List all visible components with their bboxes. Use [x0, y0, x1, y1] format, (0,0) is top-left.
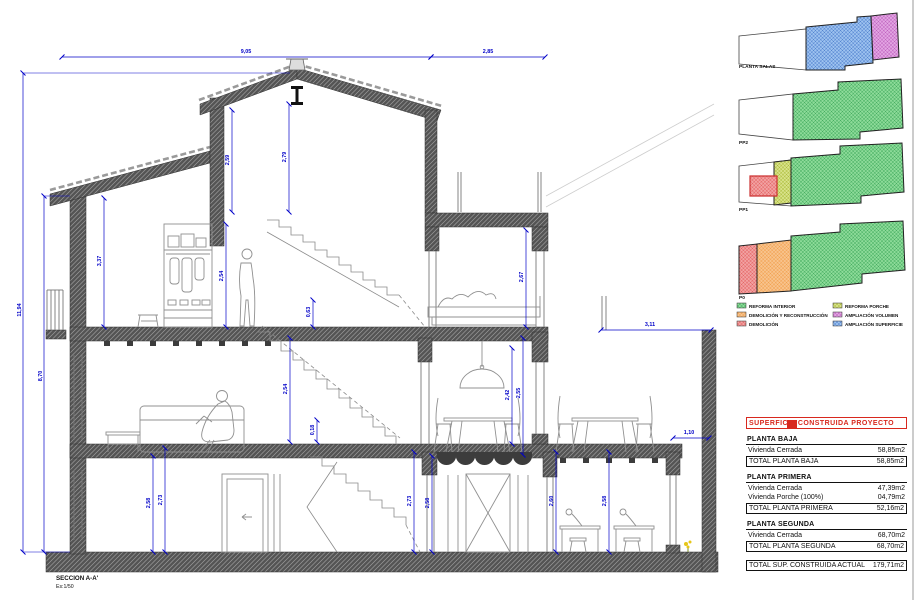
legend-swatch-green: [737, 303, 746, 308]
left-wall: [70, 196, 86, 554]
table-grand-total: TOTAL SUP. CONSTRUIDA ACTUAL179,71m2: [746, 560, 907, 571]
dim-label: 3,11: [645, 322, 655, 328]
plan-region-ampliacion-superficie: [806, 16, 873, 70]
furniture-dressing-room: [138, 224, 255, 327]
plan-region-ampliacion-volumen: [871, 13, 899, 60]
plan-label: P0: [739, 295, 745, 301]
table-row: Vivienda Cerrada68,70m2: [746, 530, 907, 539]
dim-label: 2,60: [549, 496, 555, 507]
title-highlight: [787, 420, 797, 429]
mini-plan-pp2: PP2: [739, 79, 903, 146]
dim-label: 0,18: [310, 425, 316, 436]
legend-label: REFORMA PORCHE: [845, 304, 889, 309]
first-floor-slab: [70, 444, 682, 458]
mini-plan-pp1: PP1: [739, 143, 904, 213]
gable-roof-right-slope: [297, 68, 441, 121]
table-total-row: TOTAL PLANTA BAJA58,85m2: [746, 456, 907, 467]
dim-label: 2,54: [219, 271, 225, 282]
seated-person: [202, 401, 234, 442]
patio-plant: [684, 541, 692, 553]
table-section-header: PLANTA SEGUNDA: [746, 520, 907, 530]
dim-label: 3,37: [97, 256, 103, 267]
table-section-header: PLANTA BAJA: [746, 435, 907, 445]
neighbour-roof-lines: [546, 104, 714, 207]
plan-region-demolicion: [750, 176, 777, 196]
furniture-bedroom: [428, 291, 540, 325]
legend-label: AMPLIACIÓN VOLUMEN: [845, 311, 899, 318]
legend-swatch-purple: [833, 312, 842, 317]
balcony-slab: [46, 330, 66, 339]
dim-label: 9,05: [241, 49, 252, 55]
legend-swatch-blue: [833, 321, 842, 326]
plan-region-reforma-interior: [791, 221, 905, 291]
drawing-title: SECCION A-A' Es:1/50: [56, 575, 99, 590]
boundary-wall: [702, 330, 716, 572]
legend-swatch-olive: [833, 303, 842, 308]
left-roof: [50, 151, 210, 206]
table-section-header: PLANTA PRIMERA: [746, 473, 907, 483]
dining-left-wall-stub: [418, 338, 432, 362]
gf-wall-stub-1: [422, 452, 437, 475]
flat-roof-band: [425, 213, 548, 227]
legend-label: AMPLIACIÓN SUPERFICIE: [845, 320, 903, 327]
dim-label: 2,73: [158, 495, 164, 506]
gf-wall-stub-2: [543, 452, 557, 477]
legend-swatch-orange: [737, 312, 746, 317]
dim-label: 2,67: [519, 272, 525, 283]
gable-roof-left-slope: [200, 68, 297, 115]
building-structure: [46, 59, 718, 572]
drawing-sheet: 9,05 2,85 11,94 8,70 3,37 2,59 2,79 2,54…: [0, 0, 922, 600]
furniture-terrace: [556, 396, 654, 452]
plan-region-reforma-interior: [791, 143, 904, 206]
plan-label: PLANTA SALAS: [739, 64, 776, 70]
bedroom-left-wall-stub: [425, 227, 439, 251]
table-total-row: TOTAL PLANTA PRIMERA52,16m2: [746, 503, 907, 514]
mini-plan-p0: P0: [739, 221, 905, 301]
section-scale: Es:1/50: [56, 584, 74, 590]
door-swing-arrow: [242, 514, 252, 520]
table-row: Vivienda Porche (100%)04,79m2: [746, 492, 907, 501]
dim-label: 2,59: [225, 155, 231, 166]
dining-window-sill: [532, 434, 548, 444]
ridge-beam-symbol: [291, 86, 303, 105]
table-row: Vivienda Cerrada47,39m2: [746, 483, 907, 492]
plan-label: PP1: [739, 207, 748, 213]
dim-label: 8,70: [38, 371, 44, 382]
table-total-row: TOTAL PLANTA SEGUNDA68,70m2: [746, 541, 907, 552]
second-floor-slab: [70, 327, 548, 341]
bedroom-right-wall-stub: [532, 227, 548, 251]
dim-label: 2,85: [483, 49, 494, 55]
dim-label: 0,63: [306, 307, 312, 318]
legend-label: REFORMA INTERIOR: [749, 304, 796, 309]
dim-label: 2,58: [602, 496, 608, 507]
pendant-lamp: [460, 369, 504, 388]
gf-wall-stub-3: [666, 452, 680, 475]
plan-region-reforma-interior: [793, 79, 903, 140]
legend-label: DEMOLICIÓN Y RECONSTRUCCIÓN: [749, 311, 828, 318]
railings-and-openings: [47, 172, 676, 552]
table-row: Vivienda Cerrada58,85m2: [746, 445, 907, 454]
gable-right-parapet: [425, 110, 437, 213]
bed-pillows: [438, 291, 496, 307]
gf-window-sill: [666, 545, 680, 553]
plan-region-demolicion: [739, 244, 757, 294]
chimney: [289, 59, 305, 70]
dim-label: 1,10: [684, 430, 695, 436]
dim-label: 2,73: [407, 496, 413, 507]
ground-hatch: [46, 552, 718, 572]
dim-label: 2,54: [283, 384, 289, 395]
dining-right-wall-stub: [532, 332, 548, 362]
surface-table: SUPERFICIE CONSTRUIDA PROYECTO PLANTA BA…: [746, 417, 907, 571]
legend-swatch-red: [737, 321, 746, 326]
dim-label: 2,42: [505, 390, 511, 401]
dim-label: 2,79: [282, 152, 288, 163]
legend-label: DEMOLICIÓN: [749, 320, 779, 327]
standing-person: [240, 263, 255, 326]
dim-label: 2,58: [425, 498, 431, 509]
furniture-ground-floor: [222, 474, 654, 552]
plan-label: PP2: [739, 140, 748, 146]
dim-label: 2,55: [516, 388, 522, 399]
dimensions: 9,05 2,85 11,94 8,70 3,37 2,59 2,79 2,54…: [17, 49, 711, 552]
dim-label: 11,94: [17, 303, 23, 316]
mini-plan-cubiertas: PLANTA SALAS: [739, 13, 899, 70]
section-title: SECCION A-A': [56, 575, 99, 582]
plan-region-demolicion-reconstruccion: [757, 240, 791, 293]
vaulted-ceiling: [437, 452, 532, 465]
plan-legend: REFORMA INTERIOR DEMOLICIÓN Y RECONSTRUC…: [737, 303, 903, 327]
dim-label: 2,58: [146, 498, 152, 509]
furniture-living-room: [106, 391, 244, 453]
surface-table-title: SUPERFICIE CONSTRUIDA PROYECTO: [746, 417, 907, 429]
